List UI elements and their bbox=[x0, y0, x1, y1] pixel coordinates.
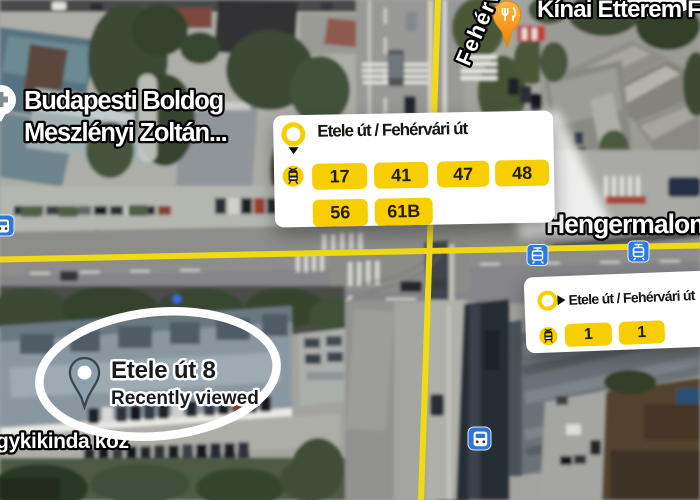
svg-text:Hengermalom u: Hengermalom u bbox=[546, 209, 700, 239]
svg-text:Budapesti Boldog: Budapesti Boldog bbox=[24, 87, 223, 115]
svg-text:Kínai Étterem F: Kínai Étterem F bbox=[537, 0, 700, 23]
svg-text:Meszlényi Zoltán...: Meszlényi Zoltán... bbox=[24, 119, 227, 147]
